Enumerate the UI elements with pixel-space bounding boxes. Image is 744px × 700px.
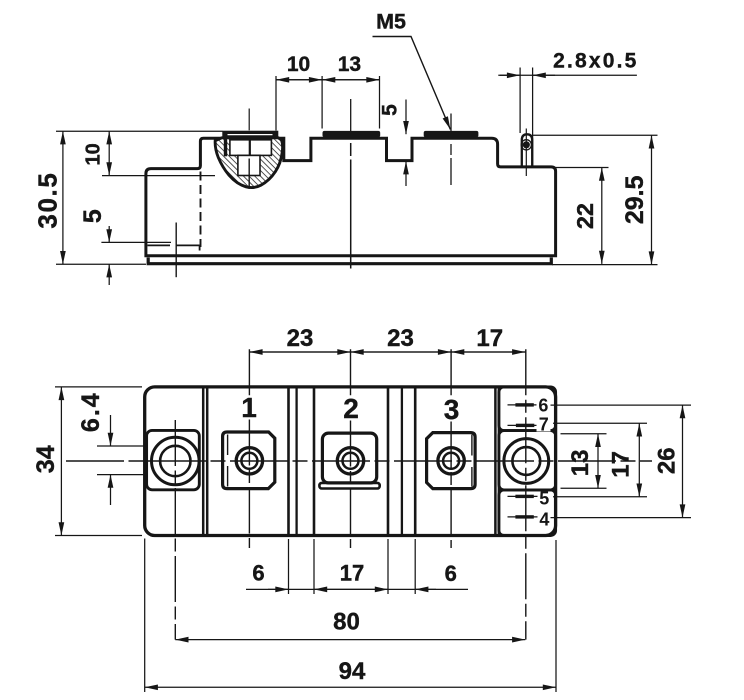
svg-text:34: 34	[32, 445, 60, 473]
svg-text:80: 80	[333, 608, 360, 635]
svg-text:6.4: 6.4	[77, 391, 105, 432]
svg-text:6: 6	[445, 561, 457, 586]
svg-text:13: 13	[567, 450, 594, 477]
svg-text:94: 94	[339, 658, 366, 685]
svg-text:23: 23	[287, 325, 314, 352]
svg-text:5: 5	[539, 489, 549, 509]
svg-text:4: 4	[539, 509, 549, 529]
svg-text:17: 17	[340, 561, 364, 586]
svg-text:29.5: 29.5	[621, 175, 649, 224]
svg-text:17: 17	[608, 451, 635, 478]
svg-text:10: 10	[287, 53, 310, 76]
svg-text:30.5: 30.5	[33, 172, 63, 229]
svg-text:5: 5	[79, 209, 107, 223]
svg-text:13: 13	[338, 53, 361, 76]
svg-text:5: 5	[378, 104, 401, 116]
svg-text:2.8x0.5: 2.8x0.5	[553, 50, 638, 73]
svg-text:6: 6	[538, 395, 548, 415]
svg-text:10: 10	[83, 143, 105, 165]
svg-text:6: 6	[252, 561, 264, 586]
svg-text:17: 17	[476, 325, 503, 352]
svg-text:7: 7	[539, 414, 549, 434]
svg-text:2: 2	[343, 393, 359, 424]
svg-text:M5: M5	[376, 10, 406, 34]
svg-text:22: 22	[572, 203, 598, 229]
svg-text:26: 26	[654, 447, 681, 474]
svg-text:3: 3	[444, 394, 460, 425]
svg-text:23: 23	[387, 325, 414, 352]
svg-text:1: 1	[241, 392, 257, 423]
